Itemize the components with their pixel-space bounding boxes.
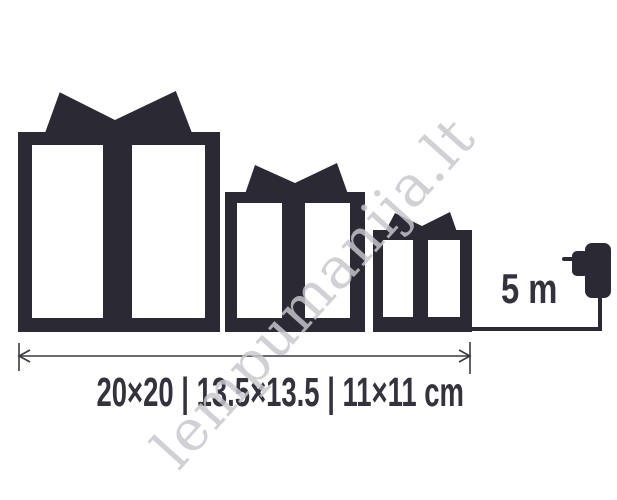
gift-box-large-icon [18,132,220,332]
product-dimensions-diagram: lempumanija.lt 5 m [0,0,617,500]
gift-window [428,240,460,317]
cable-line [598,296,602,329]
adapter-body [585,243,611,298]
gift-window [237,203,282,318]
gift-box-small-icon [373,230,472,332]
gift-window [132,145,205,318]
gift-window [305,203,350,318]
dimensions-label: 20×20 | 13.5×13.5 | 11×11 cm [6,370,486,414]
cable-line [470,327,602,331]
cable-length-label: 5 m [479,268,579,310]
gift-bow-small-icon [385,212,457,232]
gift-box-medium-icon [225,192,365,332]
gift-bow-large-icon [45,91,192,133]
dimensions-text: 20×20 | 13.5×13.5 | 11×11 cm [96,370,463,414]
gift-window [32,145,103,318]
gift-window [383,240,413,317]
gift-bow-medium-icon [245,163,348,194]
cable-length-text: 5 m [501,268,557,310]
